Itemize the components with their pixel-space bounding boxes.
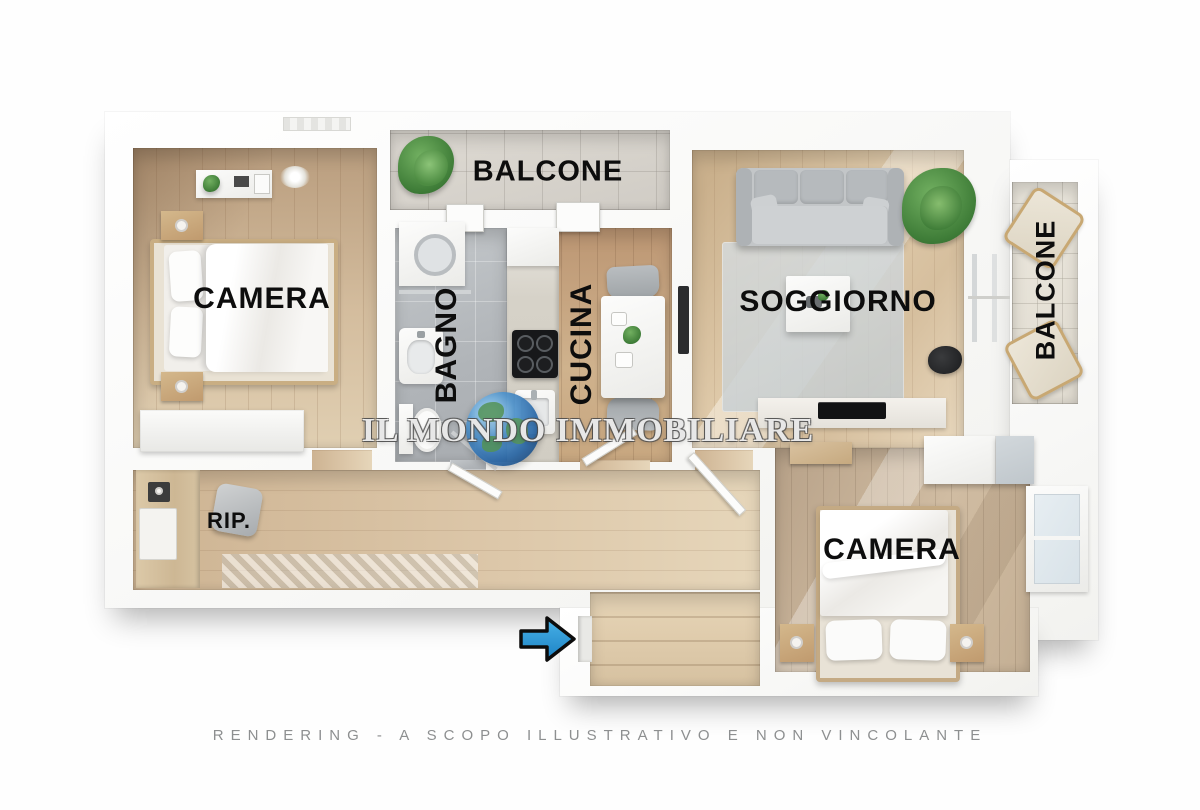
dining-chair — [606, 265, 660, 300]
nightstand — [161, 211, 203, 240]
room-label-cucina: CUCINA — [565, 283, 599, 406]
disclaimer-text: RENDERING - A SCOPO ILLUSTRATIVO E NON V… — [213, 727, 987, 744]
sofa-armrest — [736, 168, 752, 246]
entry-floor — [590, 592, 760, 686]
sideboard — [140, 410, 304, 452]
nightstand — [161, 372, 203, 401]
room-label-camera-1: CAMERA — [193, 282, 331, 316]
wardrobe — [924, 436, 996, 484]
tv — [818, 402, 886, 419]
door-handle — [968, 296, 1010, 299]
dining-table — [601, 296, 665, 398]
room-label-balcone-right: BALCONE — [1031, 220, 1062, 361]
room-label-camera-2: CAMERA — [823, 533, 961, 567]
window-mullion — [1034, 536, 1080, 540]
sofa-back-cushion — [800, 170, 844, 204]
entry-door-opening — [578, 616, 592, 662]
desk-tablet — [254, 174, 270, 194]
floor-plan-rendering: BALCONE CAMERA BAGNO CUCINA SOGGIORNO BA… — [0, 0, 1200, 810]
camera-1-door-gap — [312, 450, 372, 470]
desk-items — [234, 176, 249, 187]
pillow — [889, 619, 946, 661]
lounge-chair — [928, 346, 962, 374]
faucet — [417, 331, 425, 338]
watermark-brand: IL MONDO IMMOBILIARE — [362, 412, 815, 450]
nightstand — [950, 624, 984, 662]
closet-item — [148, 482, 170, 502]
room-label-bagno: BAGNO — [430, 287, 464, 404]
room-label-soggiorno: SOGGIORNO — [739, 285, 936, 319]
nightstand — [780, 624, 814, 662]
kitchen-faucet — [531, 390, 537, 400]
kitchen-wall-cabinet — [507, 228, 559, 266]
balcone-door — [556, 202, 600, 232]
room-label-ripostiglio: RIP. — [207, 508, 251, 534]
room-label-balcone-top: BALCONE — [473, 156, 623, 189]
closet-panel — [139, 508, 177, 560]
tv-niche — [678, 286, 689, 354]
cup — [611, 312, 627, 326]
plate — [615, 352, 633, 368]
ceiling-light — [280, 166, 310, 188]
washing-machine-door — [414, 234, 456, 276]
cooktop — [512, 330, 558, 378]
sofa-seat — [752, 206, 888, 244]
camera-1-window — [283, 117, 351, 131]
wardrobe-section — [996, 436, 1034, 484]
entrance-arrow-icon — [518, 613, 578, 665]
doormat — [222, 554, 478, 588]
pillow — [825, 619, 882, 661]
